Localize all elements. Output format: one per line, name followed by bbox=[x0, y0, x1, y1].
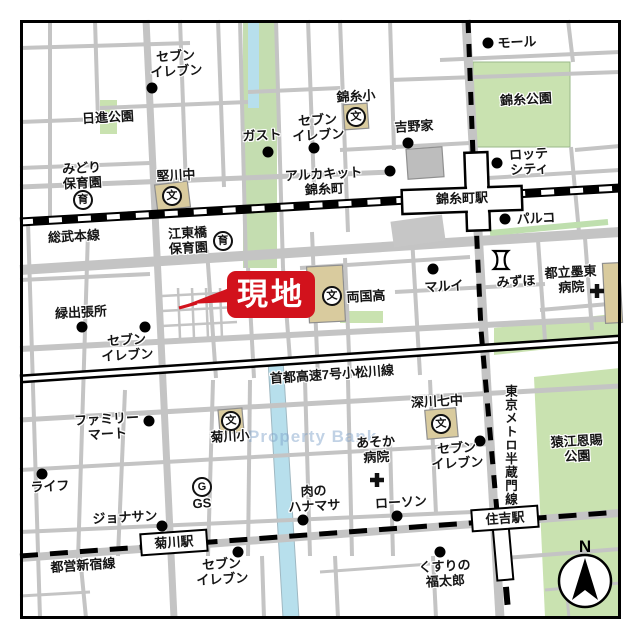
poi-label-kotobashi-nursery: 江東橋 保育園 bbox=[168, 225, 208, 256]
rail-label-hanzomon: 東京メトロ半蔵門線 bbox=[503, 384, 517, 506]
station-label-sumiyoshi: 住吉駅 bbox=[485, 510, 525, 527]
dot-seven-north bbox=[147, 83, 158, 94]
poi-label-kikukawa-elementary: 菊川小 bbox=[210, 429, 250, 446]
dot-familymart bbox=[144, 416, 155, 427]
compass-rose bbox=[559, 555, 611, 607]
dot-arcakit bbox=[385, 166, 396, 177]
dot-yoshinoya bbox=[403, 138, 414, 149]
poi-label-gusto: ガスト bbox=[242, 128, 282, 145]
station-label-kinshicho: 錦糸町駅 bbox=[436, 191, 488, 207]
dot-fukutaro bbox=[435, 547, 446, 558]
compass-north-label: N bbox=[579, 537, 591, 557]
poi-label-lawson: ローソン bbox=[375, 494, 428, 511]
poi-label-seven-eleven-2: セブン イレブン bbox=[291, 112, 344, 144]
dot-seven-2 bbox=[309, 143, 320, 154]
park-label-sarue: 猿江恩賜 公園 bbox=[550, 433, 603, 465]
poi-label-familymart: ファミリー マート bbox=[74, 411, 140, 443]
dot-lotte-city bbox=[492, 158, 503, 169]
poi-label-marui: マルイ bbox=[424, 279, 464, 296]
bank-icon bbox=[491, 248, 511, 272]
dot-marui bbox=[428, 264, 439, 275]
poi-label-seven-eleven-4: セブン イレブン bbox=[430, 440, 483, 472]
poi-label-fukagawa-7-jhs: 深川七中 bbox=[411, 393, 464, 410]
poi-label-tatekawa-jhs: 堅川中 bbox=[156, 168, 196, 185]
poi-label-seven-eleven-5: セブン イレブン bbox=[195, 556, 248, 588]
poi-label-yoshinoya: 吉野家 bbox=[394, 119, 434, 136]
station-label-kikukawa: 菊川駅 bbox=[154, 534, 194, 551]
dot-life bbox=[37, 469, 48, 480]
dot-gusto bbox=[263, 147, 274, 158]
poi-label-mall: モール bbox=[497, 35, 537, 52]
dot-lawson bbox=[392, 511, 403, 522]
poi-label-midori-nursery: みどり 保育園 bbox=[62, 160, 102, 191]
dot-midori-office bbox=[77, 322, 88, 333]
poi-label-mizuho: みずほ bbox=[496, 274, 536, 291]
poi-label-hanamasa: 肉の ハナマサ bbox=[287, 483, 340, 515]
dot-jonathan bbox=[157, 521, 168, 532]
poi-label-life: ライフ bbox=[30, 479, 70, 496]
dot-hanamasa bbox=[298, 515, 309, 526]
poi-label-bokuto-hospital: 都立墨東 病院 bbox=[544, 264, 597, 296]
dot-mall bbox=[483, 38, 494, 49]
poi-label-asoka-hospital: あそか 病院 bbox=[356, 434, 396, 465]
poi-label-arcakit: アルカキット 錦糸町 bbox=[285, 165, 364, 198]
poi-label-seven-eleven-3: セブン イレブン bbox=[100, 332, 153, 364]
park-label-nisshin: 日進公園 bbox=[82, 109, 135, 126]
poi-label-gs: GS bbox=[192, 496, 212, 512]
site-marker-label: 現地 bbox=[237, 279, 305, 310]
poi-label-kinshi-elementary: 錦糸小 bbox=[336, 89, 376, 106]
poi-label-parco: パルコ bbox=[516, 211, 555, 228]
poi-label-ryogoku-high: 両国高 bbox=[346, 289, 386, 306]
rail-label-sobu: 総武本線 bbox=[48, 228, 101, 245]
site-marker-balloon: 現地 bbox=[227, 271, 315, 318]
poi-label-fukutaro: くすりの 福太郎 bbox=[418, 558, 471, 590]
poi-label-midori-office: 緑出張所 bbox=[55, 304, 108, 321]
dot-parco bbox=[500, 214, 511, 225]
location-map: Property Bank セブン イレブン みどり 保育園 堅川中 ガスト セ… bbox=[0, 0, 640, 640]
poi-label-lotte-city: ロッテ シティ bbox=[509, 146, 549, 177]
poi-label-seven-eleven-north: セブン イレブン bbox=[149, 48, 202, 80]
park-label-kinshi: 錦糸公園 bbox=[500, 91, 553, 108]
